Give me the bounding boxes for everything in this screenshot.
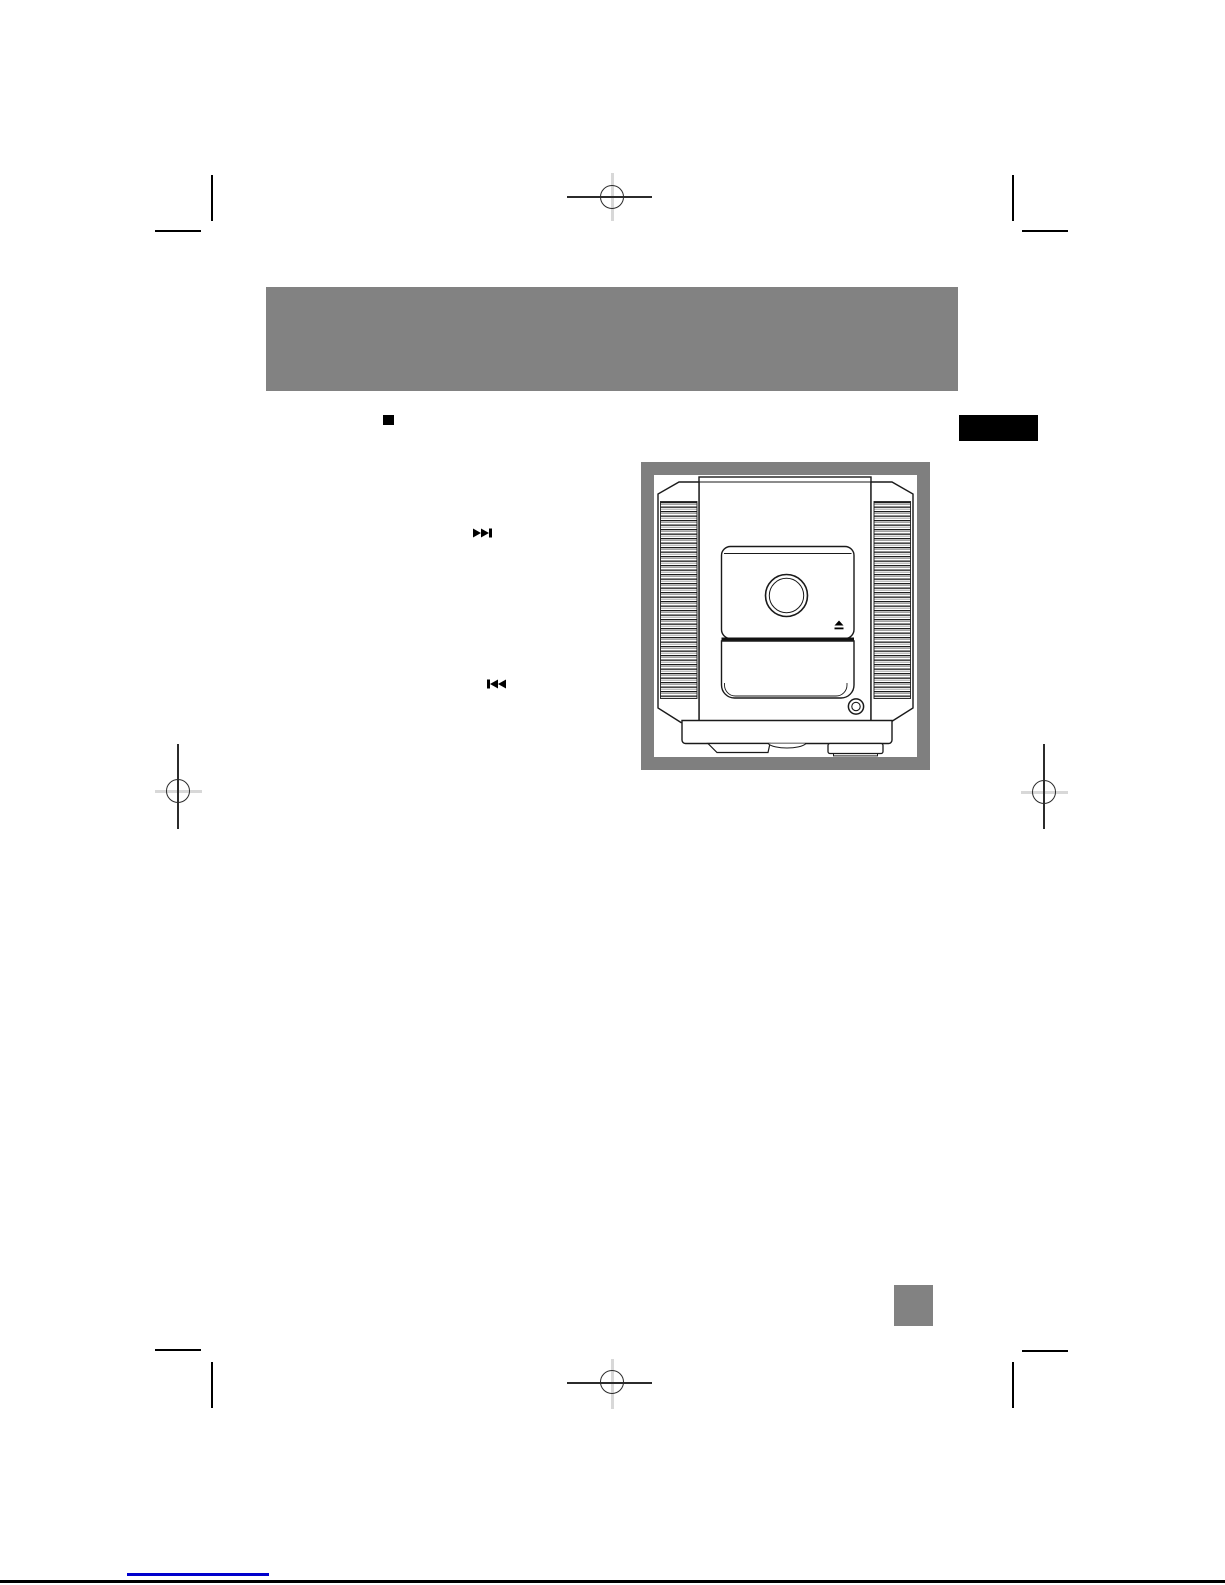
cassette-door bbox=[722, 641, 855, 698]
registration-circle bbox=[166, 779, 190, 803]
hyperlink-underline[interactable] bbox=[127, 1573, 269, 1576]
base bbox=[682, 721, 892, 744]
registration-mark-top-center bbox=[567, 173, 652, 221]
crop-mark-top-right-vertical bbox=[1012, 175, 1014, 221]
registration-circle bbox=[600, 1370, 624, 1394]
stereo-system-illustration bbox=[654, 475, 917, 757]
document-page bbox=[0, 0, 1225, 1585]
registration-mark-left-middle bbox=[155, 744, 202, 829]
crop-mark-bottom-left-horizontal bbox=[155, 1349, 201, 1351]
left-speaker-grille bbox=[661, 502, 698, 699]
page-bottom-rule bbox=[0, 1580, 1225, 1583]
registration-circle bbox=[600, 185, 624, 209]
cd-door bbox=[722, 547, 855, 639]
crop-mark-top-left-horizontal bbox=[155, 230, 201, 232]
right-foot-lip bbox=[834, 754, 878, 756]
registration-mark-bottom-center bbox=[567, 1359, 652, 1409]
crop-mark-top-right-horizontal bbox=[1022, 230, 1068, 232]
power-knob bbox=[848, 699, 863, 714]
crop-mark-bottom-right-vertical bbox=[1012, 1362, 1014, 1408]
crop-mark-bottom-left-vertical bbox=[211, 1362, 213, 1408]
edge-index-tab bbox=[959, 415, 1038, 441]
left-foot bbox=[708, 744, 770, 753]
right-speaker-grille bbox=[874, 502, 911, 699]
next-track-icon bbox=[473, 528, 493, 538]
center-foot bbox=[768, 744, 806, 749]
crop-mark-bottom-right-horizontal bbox=[1022, 1350, 1068, 1352]
right-foot bbox=[828, 744, 883, 754]
previous-track-icon bbox=[486, 679, 506, 689]
page-number-box bbox=[894, 1285, 933, 1326]
registration-circle bbox=[1032, 780, 1056, 804]
illustration-frame bbox=[641, 462, 930, 770]
registration-mark-right-middle bbox=[1021, 744, 1068, 829]
chapter-title-bar bbox=[266, 287, 958, 391]
crop-mark-top-left-vertical bbox=[211, 175, 213, 221]
section-bullet-square bbox=[383, 415, 394, 425]
